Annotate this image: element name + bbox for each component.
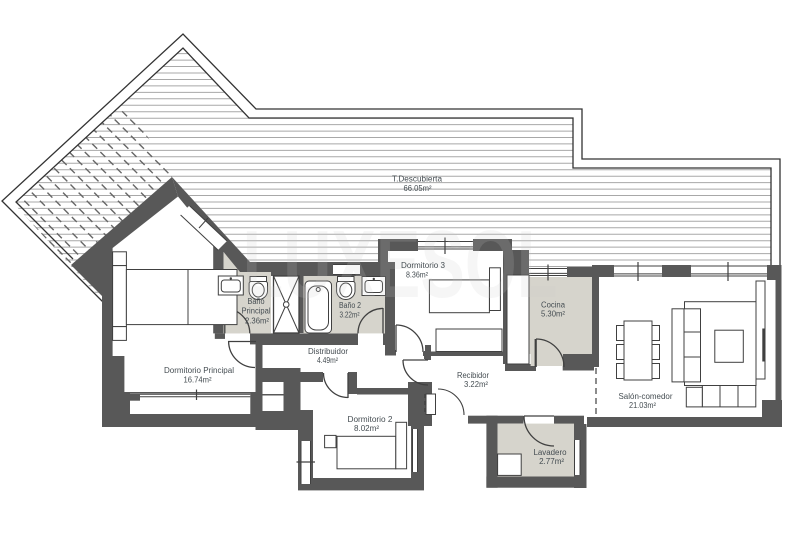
svg-text:Lavadero: Lavadero [534,448,568,457]
svg-text:Cocina: Cocina [541,301,566,310]
svg-text:16.74m²: 16.74m² [184,376,212,385]
svg-text:Baño 2: Baño 2 [339,301,361,310]
svg-text:Dormitorio 3: Dormitorio 3 [401,261,446,270]
svg-text:Principal: Principal [242,307,271,316]
svg-text:Baño: Baño [248,297,265,306]
svg-text:3.22m²: 3.22m² [464,380,488,389]
svg-text:3.22m²: 3.22m² [340,310,360,319]
svg-text:21.03m²: 21.03m² [629,401,656,410]
svg-text:66.05m²: 66.05m² [404,184,432,193]
svg-text:2.36m²: 2.36m² [245,317,269,326]
svg-text:5.30m²: 5.30m² [541,310,565,319]
svg-text:4.49m²: 4.49m² [317,356,338,365]
svg-text:Salón-comedor: Salón-comedor [619,392,673,401]
svg-text:Distribuidor: Distribuidor [308,347,348,356]
svg-text:8.02m²: 8.02m² [354,424,379,433]
svg-text:Recibidor: Recibidor [457,371,489,380]
svg-text:Dormitorio 2: Dormitorio 2 [348,415,394,424]
svg-text:2.77m²: 2.77m² [539,457,564,466]
svg-text:Dormitorio Principal: Dormitorio Principal [164,366,234,375]
svg-text:8.36m²: 8.36m² [406,271,428,280]
svg-text:T.Descubierta: T.Descubierta [392,175,443,184]
svg-text:LUXESOL: LUXESOL [243,211,558,318]
